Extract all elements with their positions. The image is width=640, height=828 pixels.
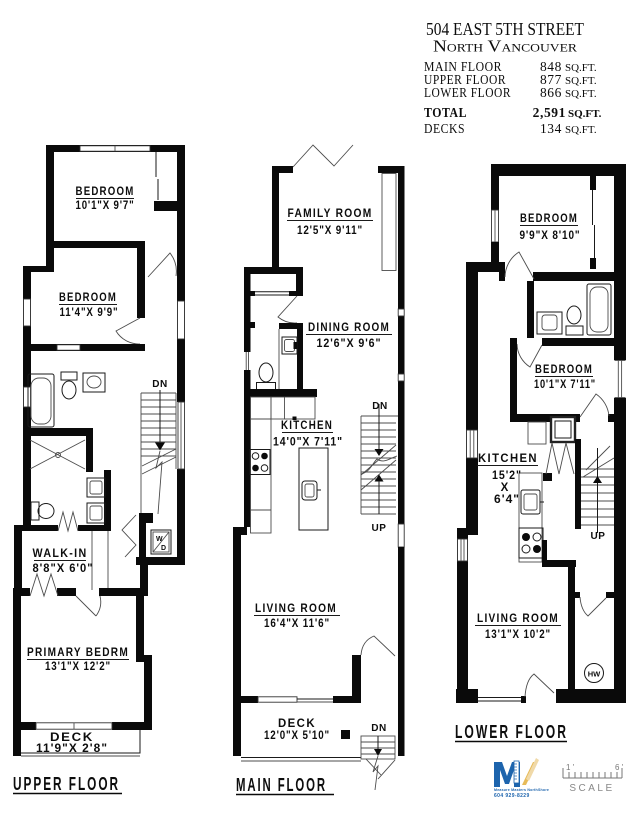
svg-text:X: X bbox=[501, 482, 510, 494]
svg-text:1 ': 1 ' bbox=[566, 763, 575, 772]
svg-text:HW: HW bbox=[588, 670, 601, 679]
svg-text:DINING ROOM: DINING ROOM bbox=[308, 320, 390, 334]
svg-text:D: D bbox=[161, 545, 166, 552]
svg-text:LOWER FLOOR: LOWER FLOOR bbox=[424, 85, 511, 100]
svg-text:8'8"X 6'0": 8'8"X 6'0" bbox=[33, 563, 94, 575]
svg-text:DECKS: DECKS bbox=[424, 121, 465, 136]
svg-text:North Vancouver: North Vancouver bbox=[433, 37, 577, 56]
svg-text:DECK: DECK bbox=[278, 716, 316, 730]
svg-text:WALK-IN: WALK-IN bbox=[33, 546, 88, 560]
svg-text:12'6"X 9'6": 12'6"X 9'6" bbox=[317, 338, 382, 350]
svg-text:DECK: DECK bbox=[50, 730, 94, 744]
svg-text:10'1"X 7'11": 10'1"X 7'11" bbox=[534, 379, 596, 391]
svg-text:DN: DN bbox=[372, 401, 387, 412]
svg-text:604 929-8229: 604 929-8229 bbox=[494, 793, 530, 799]
svg-text:9'9"X 8'10": 9'9"X 8'10" bbox=[520, 230, 581, 242]
svg-text:FAMILY ROOM: FAMILY ROOM bbox=[288, 206, 373, 220]
svg-text:10'1"X 9'7": 10'1"X 9'7" bbox=[76, 200, 135, 212]
svg-text:W: W bbox=[156, 536, 163, 543]
svg-text:SQ.FT.: SQ.FT. bbox=[565, 88, 597, 100]
svg-text:12'5"X 9'11": 12'5"X 9'11" bbox=[297, 225, 363, 237]
svg-text:Measure Masters NorthShore: Measure Masters NorthShore bbox=[494, 788, 549, 792]
svg-text:13'1"X 12'2": 13'1"X 12'2" bbox=[45, 661, 111, 673]
svg-text:LIVING ROOM: LIVING ROOM bbox=[477, 611, 559, 625]
svg-text:PRIMARY BEDRM: PRIMARY BEDRM bbox=[27, 645, 129, 659]
svg-text:UP: UP bbox=[591, 531, 606, 542]
svg-text:LOWER FLOOR: LOWER FLOOR bbox=[455, 722, 568, 742]
svg-text:6 ': 6 ' bbox=[615, 763, 624, 772]
svg-text:14'0"X 7'11": 14'0"X 7'11" bbox=[273, 437, 343, 449]
svg-text:SQ.FT.: SQ.FT. bbox=[565, 62, 597, 74]
svg-text:UP: UP bbox=[372, 523, 387, 534]
svg-text:MAIN FLOOR: MAIN FLOOR bbox=[236, 775, 327, 795]
svg-text:LIVING ROOM: LIVING ROOM bbox=[255, 601, 337, 615]
svg-text:6'4": 6'4" bbox=[494, 494, 520, 506]
svg-text:12'0"X 5'10": 12'0"X 5'10" bbox=[264, 730, 330, 742]
svg-text:KITCHEN: KITCHEN bbox=[281, 418, 333, 432]
svg-text:KITCHEN: KITCHEN bbox=[478, 451, 538, 465]
svg-text:TOTAL: TOTAL bbox=[424, 105, 467, 120]
svg-text:SCALE: SCALE bbox=[569, 783, 614, 794]
svg-text:BEDROOM: BEDROOM bbox=[520, 211, 578, 225]
svg-text:11'9"X 2'8": 11'9"X 2'8" bbox=[36, 743, 108, 755]
svg-text:866: 866 bbox=[540, 85, 562, 100]
svg-text:BEDROOM: BEDROOM bbox=[59, 290, 117, 304]
svg-text:13'1"X 10'2": 13'1"X 10'2" bbox=[485, 629, 551, 641]
svg-text:UPPER FLOOR: UPPER FLOOR bbox=[13, 774, 120, 794]
svg-text:SQ.FT.: SQ.FT. bbox=[568, 108, 602, 120]
svg-text:BEDROOM: BEDROOM bbox=[76, 184, 135, 198]
svg-text:15'2": 15'2" bbox=[492, 470, 522, 482]
svg-text:SQ.FT.: SQ.FT. bbox=[565, 75, 597, 87]
svg-text:2,591: 2,591 bbox=[533, 105, 566, 120]
svg-text:DN: DN bbox=[152, 379, 167, 390]
svg-text:134: 134 bbox=[540, 121, 562, 136]
svg-text:BEDROOM: BEDROOM bbox=[535, 362, 593, 376]
svg-text:SQ.FT.: SQ.FT. bbox=[565, 124, 597, 136]
svg-text:DN: DN bbox=[371, 723, 386, 734]
svg-text:11'4"X 9'9": 11'4"X 9'9" bbox=[60, 307, 119, 319]
svg-text:16'4"X 11'6": 16'4"X 11'6" bbox=[264, 618, 330, 630]
